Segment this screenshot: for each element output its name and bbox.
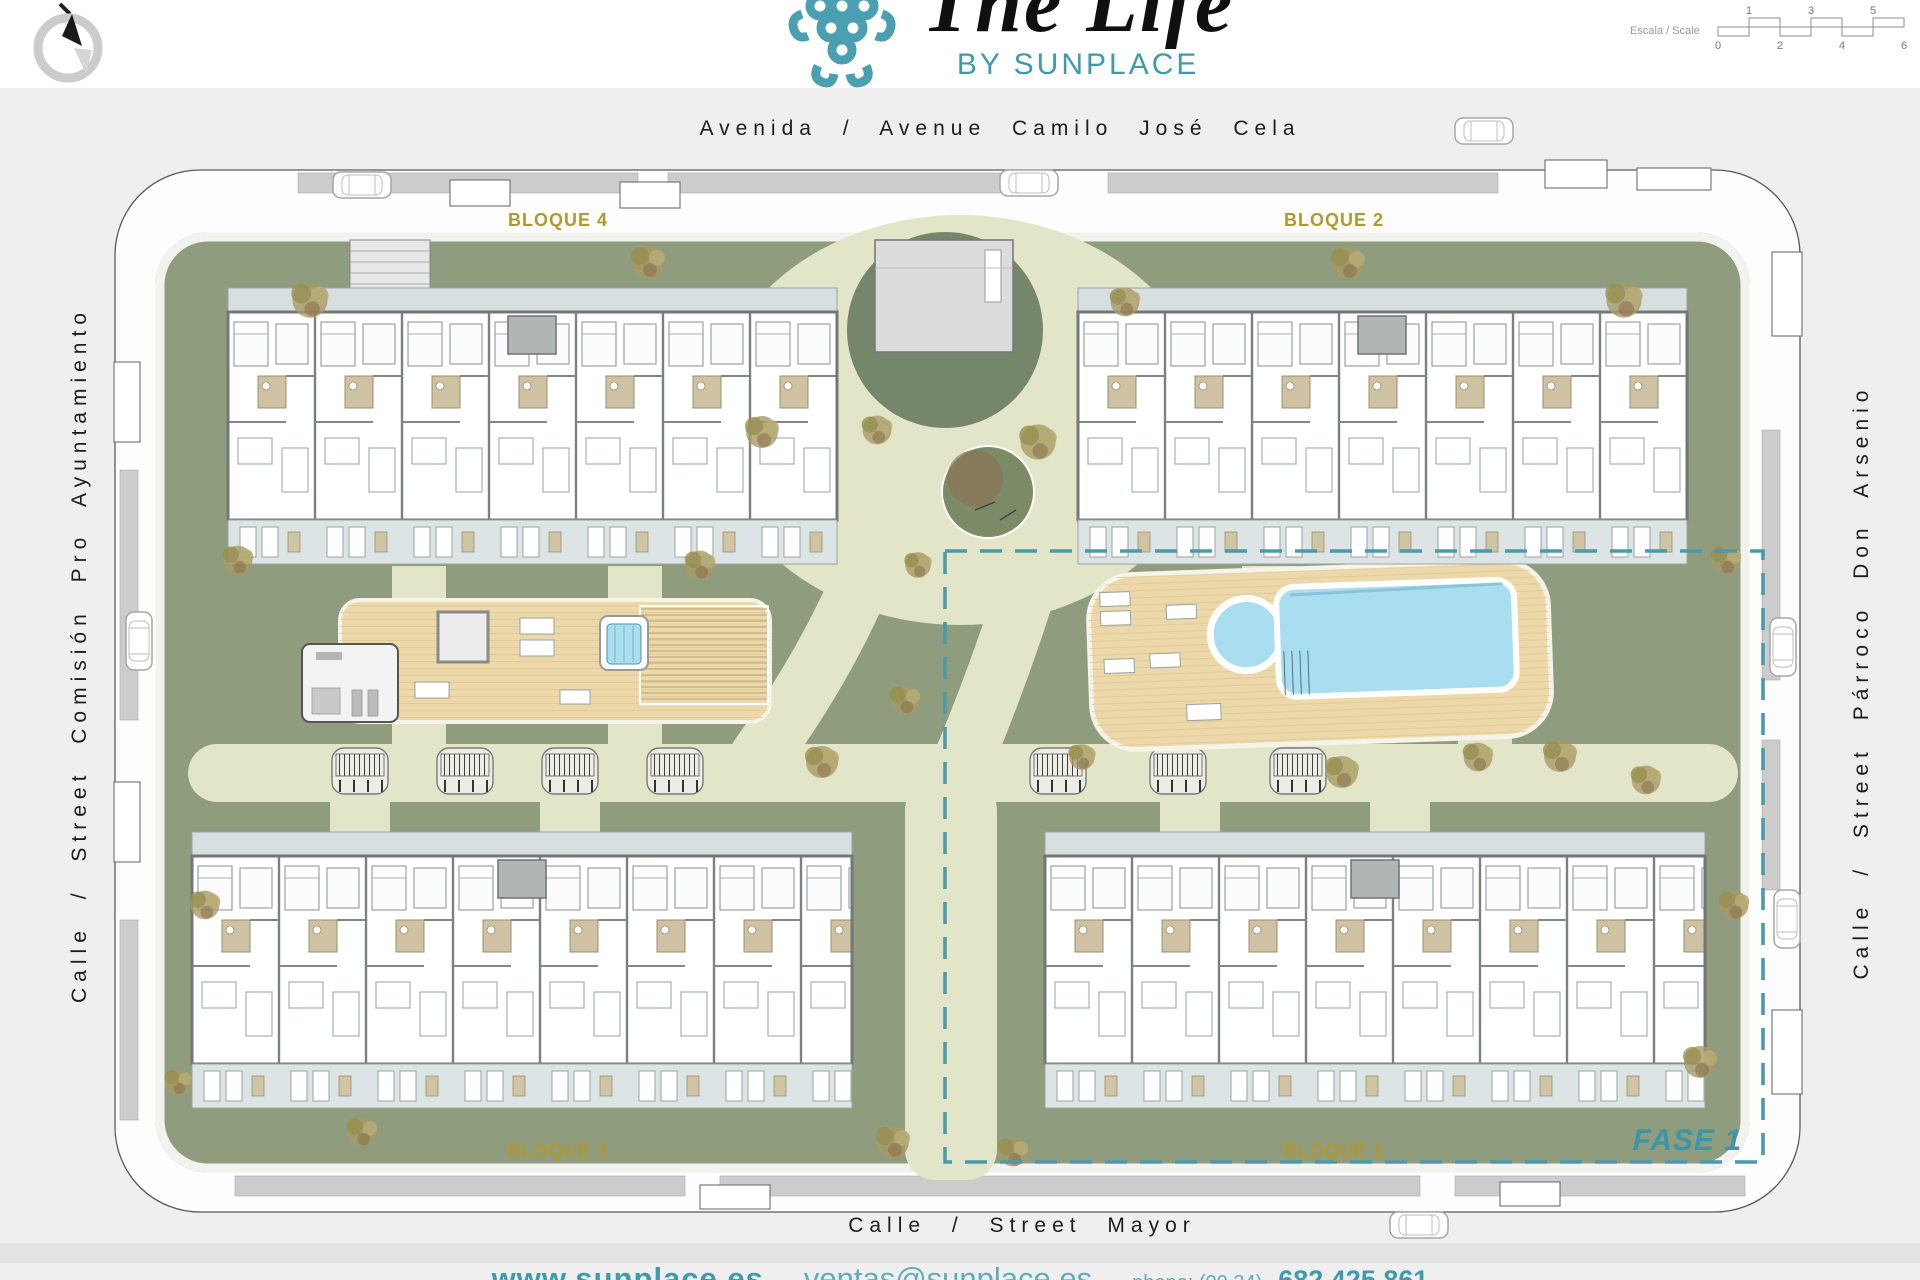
playground [942,446,1034,538]
footer-separator: - [780,1268,788,1280]
logo-knot-icon [780,0,904,88]
scale-tick: 5 [1870,5,1876,17]
spa-pool [600,616,648,670]
phase-label: FASE 1 [1633,1124,1742,1157]
pool-deck [1087,560,1553,751]
footer-band [0,1243,1920,1263]
scale-tick: 3 [1808,5,1814,17]
gym-building [302,644,398,722]
bloque-3-label: BLOQUE 3 [508,1141,608,1161]
site-plan-page: The Life BY SUNPLACE Escala / Scale 1 3 … [0,0,1920,1280]
building-block-1 [1045,832,1705,1108]
car-icon [1390,1212,1448,1238]
header-band: The Life BY SUNPLACE Escala / Scale 1 3 … [0,0,1920,88]
footer-phone-label: phone: (00 34) [1132,1272,1262,1280]
car-icon [1770,618,1796,676]
compass-north-icon [18,0,118,92]
street-label-left: Calle / Street Comisión Pro Ayuntamiento [68,307,91,1003]
scale-label: Escala / Scale [1630,25,1700,37]
brand-logo: The Life BY SUNPLACE [780,0,1234,88]
community-building [847,232,1043,428]
brand-title: The Life [922,0,1234,46]
building-block-3 [192,832,852,1108]
scale-tick: 0 [1715,40,1721,52]
car-icon [1774,890,1800,948]
scale-tick: 6 [1901,40,1907,52]
scale-bar: Escala / Scale 1 3 5 0 2 4 6 [1630,4,1910,56]
main-pool [1276,579,1518,697]
building-block-2 [1078,288,1687,564]
bloque-2-label: BLOQUE 2 [1284,210,1384,230]
car-icon [333,172,391,198]
car-icon [126,612,152,670]
scale-tick: 4 [1839,40,1845,52]
car-icon [1000,170,1058,196]
amenity-deck [302,600,770,722]
decking-terrace [640,606,768,704]
bloque-1-label: BLOQUE 1 [1284,1141,1384,1161]
site-plan-svg: FASE 1 BLOQUE 4 BLOQUE 2 BLOQUE 3 BLOQUE… [0,0,1920,1280]
footer-phone-number: 682 425 861 [1278,1265,1428,1280]
street-label-right: Calle / Street Párroco Don Arsenio [1850,385,1873,980]
round-pool [1209,597,1283,671]
street-label-top: Avenida / Avenue Camilo José Cela [699,117,1300,140]
footer-website-link[interactable]: www.sunplace.es [492,1261,764,1280]
footer-contact: www.sunplace.es - ventas@sunplace.es - p… [0,1261,1920,1280]
pavilion [438,612,488,662]
footer-email-link[interactable]: ventas@sunplace.es [804,1261,1092,1280]
bloque-4-label: BLOQUE 4 [508,210,608,230]
scale-tick: 1 [1746,5,1752,17]
scale-tick: 2 [1777,40,1783,52]
brand-subtitle: BY SUNPLACE [957,48,1200,82]
footer-separator: - [1108,1268,1116,1280]
garage-ramp [350,240,430,294]
street-label-bottom: Calle / Street Mayor [848,1214,1196,1237]
car-icon [1455,118,1513,144]
